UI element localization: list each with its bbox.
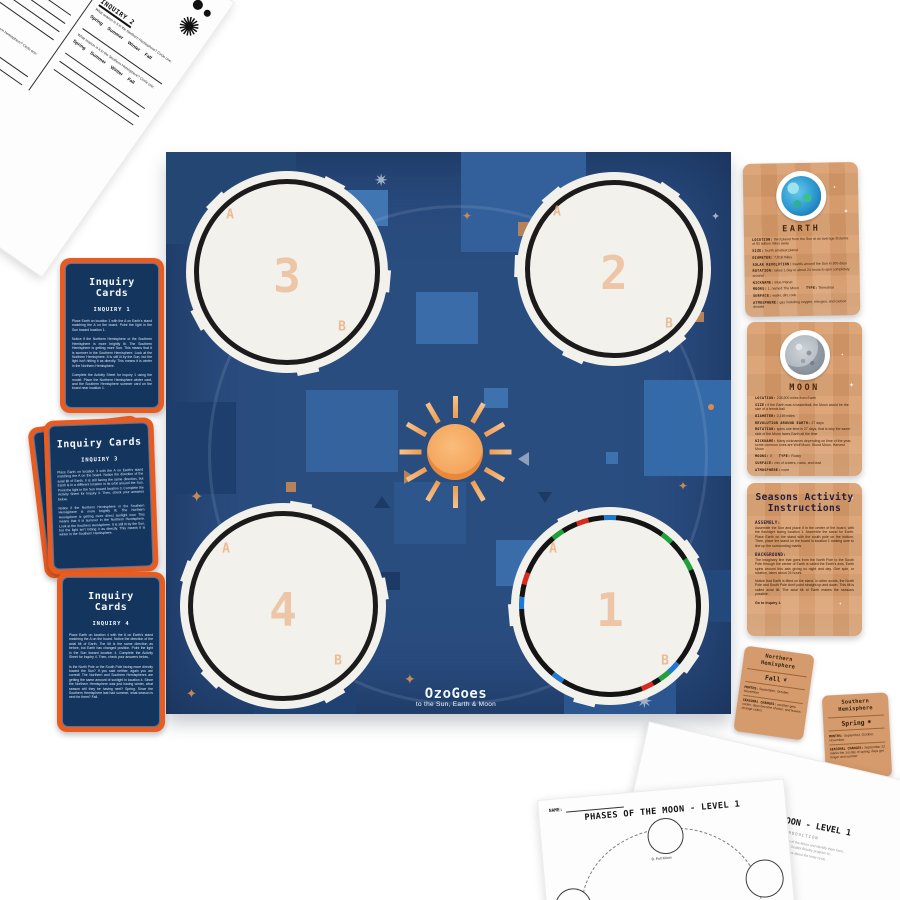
star-icon: ✦ [186,687,197,700]
fact-value: none [781,468,789,472]
triangle-icon [538,492,552,503]
fact-value: 1, named The Moon [768,286,799,291]
name-label: NAME: [549,808,563,814]
seasons-card-title: Seasons Activity Instructions [755,493,854,515]
sun-ray [399,450,421,455]
card-paragraph: Complete the Activity Sheet for Inquiry … [72,373,152,391]
fact-label: ROTATION: [755,427,776,431]
moon-icon [191,0,205,12]
card-paragraph: Place Earth on location 4 with the A on … [69,633,153,660]
fact-value: if the Earth was a basketball, the Moon … [755,403,849,411]
fact-label: NICKNAME: [753,280,774,284]
logo-subtitle: to the Sun, Earth & Moon [390,701,522,708]
earth-icon [202,8,212,18]
months-row: MONTHS: September, October, November [829,731,885,742]
location-letter-b: B [665,317,673,332]
sun-body [427,424,483,480]
fact-label: SURFACE: [753,294,772,298]
card-paragraph: Notice if the Northern Hemisphere or the… [72,337,152,368]
northern-hemisphere-card: Northern Hemisphere Fall ❦ MONTHS: Septe… [733,646,814,741]
fact-value: fourth smallest planet [765,248,798,253]
earth-image [775,171,826,222]
fact-row: DIAMETER: 2,159 miles [755,414,854,418]
phases-of-moon-sheet: NAME: PHASES OF THE MOON - LEVEL 1 B. Fu… [537,778,797,900]
fact-row: REVOLUTION AROUND EARTH: 27 days [755,421,854,425]
earth-fact-card: ✦ ✦ EARTH LOCATION: third planet from th… [743,162,861,317]
fact-value: 238,900 miles from Earth [777,396,816,400]
board-logo: OzoGoes to the Sun, Earth & Moon [390,686,522,708]
location-letter-a: A [226,208,234,223]
card-title: Inquiry Cards [69,591,153,613]
fact-card-title: EARTH [752,223,851,235]
sun-icon: ✺ [867,718,871,725]
inquiry-card-1: Inquiry Cards INQUIRY 1 Place Earth on l… [60,258,164,413]
fact-label: MOONS: [753,287,767,291]
card-subtitle: INQUIRY 4 [69,621,153,627]
location-letter-a: A [222,542,230,557]
fact-label: MOONS: [755,454,769,458]
inquiry-card-3: Inquiry Cards INQUIRY 3 Place Earth on l… [43,417,158,575]
fact-label: NICKNAME: [755,439,776,443]
star-icon: ✦ [833,184,836,189]
background-text: The imaginary line that goes from the No… [755,558,854,576]
fact-value: 0 [770,454,772,458]
dot-icon [708,404,714,410]
star-icon: ✦ [711,212,720,223]
fact-label: DIAMETER: [752,255,773,259]
card-subtitle: INQUIRY 1 [72,307,152,313]
fact-label: SURFACE: [755,461,773,465]
fact-row: SIZE: fourth smallest planet [752,247,851,253]
fact-row: ROTATION: takes 1 day or about 24 hours … [753,268,852,278]
star-icon: ✦ [404,672,416,686]
star-icon: ✦ [462,210,472,222]
location-letter-b: B [338,320,346,335]
logo-title: OzoGoes [390,686,522,702]
sun-ray [489,450,511,455]
product-photo: ✷ ✦ ✦ ✷ ✦ ✦ ✷ ✦ ✦ ✦ A 3 B [0,0,900,900]
star-icon: ✦ [190,490,203,506]
fact-row: DIAMETER: 7,918 miles [752,254,851,260]
fact-row: NICKNAME: Blue Planet [753,279,852,285]
season-name: Fall [765,673,781,683]
card-paragraph: Notice if the Northern Hemisphere or the… [58,503,145,537]
card-paragraph: Place Earth on location 3 with the A on … [57,468,144,502]
star-icon: ✦ [678,480,688,492]
location-letter-a: A [549,542,557,557]
card-subtitle: INQUIRY 3 [57,456,143,465]
card-paragraph: Place Earth on location 1 with the A on … [72,319,152,332]
assembly-heading: ASSEMBLY: [755,520,854,525]
fact-row: NICKNAME: Many nicknames depending on ti… [755,439,854,452]
circle-tab [378,270,391,293]
fact-row: ATMOSPHERE: none [755,468,854,472]
location-number: 4 [269,583,297,637]
fact-row: LOCATION: third planet from the Sun at a… [752,236,851,246]
location-letter-a: A [553,205,561,220]
fact-label: TYPE: [806,286,818,290]
fact-label: REVOLUTION AROUND EARTH: [755,421,810,425]
location-letter-b: B [334,654,342,669]
fact-value: Terrestrial [818,286,833,290]
fact-value: 2,159 miles [777,414,795,418]
moon-fact-card: ✦ ✦ MOON LOCATION: 238,900 miles from Ea… [747,322,862,476]
fact-label: ROTATION: [753,269,774,273]
fact-row: SOLAR REVOLUTION: travels around the Sun… [752,261,851,267]
location-number: 3 [273,249,301,303]
season-name: Spring [841,718,864,727]
fact-row: LOCATION: 238,900 miles from Earth [755,396,854,400]
triangle-icon [374,496,390,508]
star-icon: ✷ [374,172,388,189]
leaf-icon: ❦ [783,676,788,683]
fact-label: SIZE: [752,249,764,253]
fact-card-title: MOON [755,383,854,393]
sun-ray [453,396,458,418]
fact-value: Blue Planet [774,280,792,284]
fact-row: ATMOSPHERE: gas including oxygen, nitrog… [753,299,852,309]
triangle-icon [518,452,529,466]
fact-row: MOONS: 0 TYPE: Rocky [755,454,854,458]
seasons-instructions-card: ✦ ✦ Seasons Activity Instructions ASSEMB… [747,483,862,636]
pixel-square [694,312,704,322]
seasons-card-footer: Go to Inquiry 1. [755,601,854,605]
sun-ray [453,486,458,508]
game-board: ✷ ✦ ✦ ✷ ✦ ✦ ✷ ✦ ✦ ✦ A 3 B [166,152,731,714]
fact-row: SURFACE: water, dirt, rock [753,292,852,298]
star-icon: ✦ [841,352,844,357]
fact-value: travels around the Sun in 365 days [793,261,847,266]
card-title: Inquiry Cards [72,277,152,299]
fact-label: DIAMETER: [755,414,776,418]
assembly-text: Assemble the Sun and place it in the cen… [755,526,854,549]
fact-label: ATMOSPHERE: [755,468,780,472]
fact-label: LOCATION: [755,396,776,400]
fact-row: SURFACE: mix of craters, rocks, and dust [755,461,854,465]
fact-row: ROTATION: spins one time in 27 days; tha… [755,427,854,436]
hemisphere-title: Southern Hemisphere [827,698,884,714]
background-heading: BACKGROUND: [755,552,854,557]
fact-value: mix of craters, rocks, and dust [774,461,821,465]
location-number: 2 [600,246,628,300]
changes-row: SEASONAL CHANGES: September 22 marks the… [830,744,887,759]
background-text-2: Notice that Earth is tilted on the stand… [755,579,854,597]
fact-value: 7,918 miles [774,255,792,259]
fact-value: water, dirt, rock [772,293,796,297]
fact-value: Rocky [791,454,801,458]
inquiry-card-4: Inquiry Cards INQUIRY 4 Place Earth on l… [57,572,165,732]
card-paragraph: Is the North Pole or the South Pole faci… [69,665,153,700]
fact-value: 27 days [811,421,823,425]
fact-row: SIZE: if the Earth was a basketball, the… [755,403,854,412]
location-letter-b: B [661,654,669,669]
fact-label: SOLAR REVOLUTION: [752,262,791,267]
star-icon: ✷ [636,692,653,712]
fact-label: TYPE: [779,454,791,458]
fact-row: MOONS: 1, named The Moon TYPE: Terrestri… [753,285,852,291]
card-title: Inquiry Cards [56,437,142,451]
location-number: 1 [596,583,624,637]
moon-image [780,330,830,380]
inquiry4-heading: INQUIRY 4 [0,0,2,21]
star-icon: ✦ [843,208,848,215]
